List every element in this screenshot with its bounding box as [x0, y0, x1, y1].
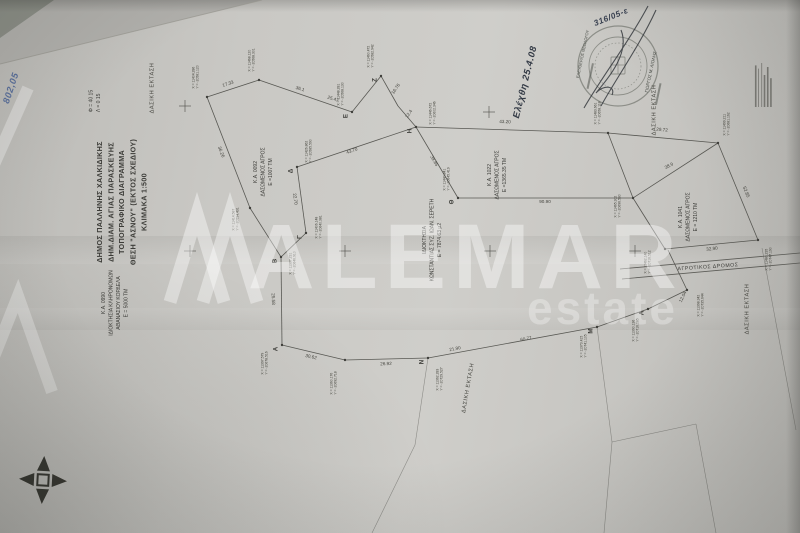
watermark-fragment	[0, 88, 28, 178]
watermark-sub-text: estate	[527, 281, 678, 335]
photo-of-survey-sheet: ΔΗΜΟΣ ΠΑΛΛΗΝΗΣ ΧΑΛΚΙΔΙΚΗΣ ΔΗΜ.ΔΙΑΜ. ΑΓΙΑ…	[0, 0, 800, 533]
watermark-layer: ALEMAR estate	[0, 0, 800, 533]
watermark-fragment	[0, 296, 52, 392]
